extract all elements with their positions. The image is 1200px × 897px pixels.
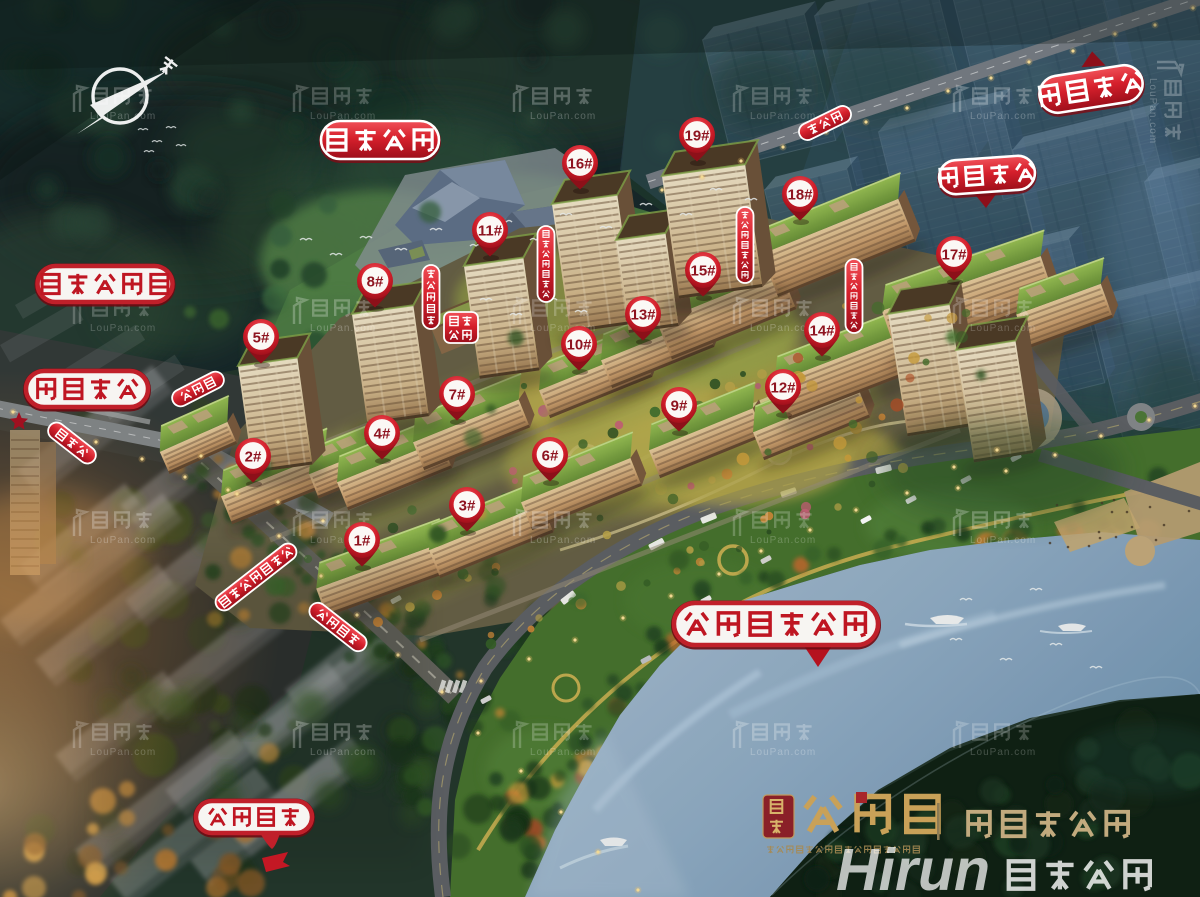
svg-text:18#: 18# bbox=[787, 187, 813, 204]
svg-text:1#: 1# bbox=[354, 533, 371, 550]
svg-text:10#: 10# bbox=[566, 337, 592, 354]
svg-text:14#: 14# bbox=[809, 323, 835, 340]
svg-text:8#: 8# bbox=[367, 274, 384, 291]
svg-text:11#: 11# bbox=[478, 223, 503, 240]
svg-text:9#: 9# bbox=[671, 398, 688, 415]
svg-text:4#: 4# bbox=[374, 426, 391, 443]
svg-text:15#: 15# bbox=[690, 263, 716, 280]
svg-text:2#: 2# bbox=[245, 449, 262, 466]
svg-text:19#: 19# bbox=[684, 128, 710, 145]
svg-text:Hirun: Hirun bbox=[836, 837, 990, 897]
svg-text:12#: 12# bbox=[770, 380, 796, 397]
svg-text:16#: 16# bbox=[567, 156, 593, 173]
svg-text:13#: 13# bbox=[630, 307, 656, 324]
svg-text:17#: 17# bbox=[941, 247, 967, 264]
svg-text:6#: 6# bbox=[542, 448, 559, 465]
svg-text:3#: 3# bbox=[459, 498, 476, 515]
svg-text:5#: 5# bbox=[253, 330, 270, 347]
svg-text:7#: 7# bbox=[449, 387, 466, 404]
